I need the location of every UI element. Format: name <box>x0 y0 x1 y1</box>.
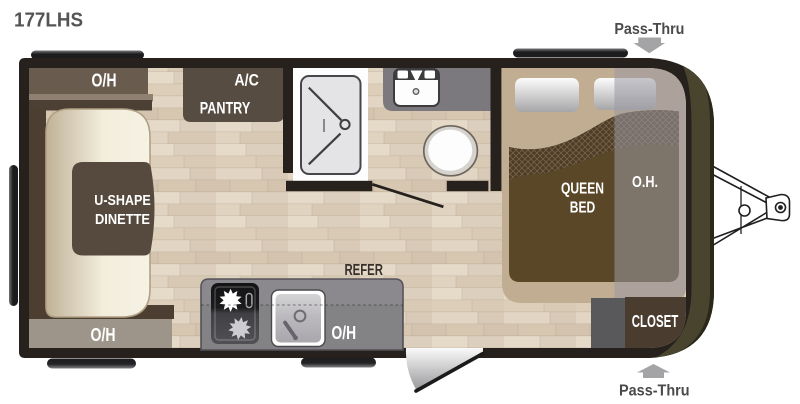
svg-text:PANTRY: PANTRY <box>200 99 251 118</box>
svg-text:Pass-Thru: Pass-Thru <box>619 383 690 400</box>
svg-text:O.H.: O.H. <box>632 174 658 191</box>
svg-text:Pass-Thru: Pass-Thru <box>614 21 684 38</box>
svg-text:O/H: O/H <box>92 70 117 91</box>
svg-text:CLOSET: CLOSET <box>632 311 679 331</box>
svg-text:BED: BED <box>570 200 596 217</box>
svg-text:U-SHAPE: U-SHAPE <box>94 193 151 209</box>
svg-text:DINETTE: DINETTE <box>95 212 150 228</box>
svg-text:177LHS: 177LHS <box>14 8 83 31</box>
svg-text:O/H: O/H <box>91 324 116 345</box>
svg-text:A/C: A/C <box>234 71 259 90</box>
svg-text:QUEEN: QUEEN <box>561 180 604 197</box>
svg-text:REFER: REFER <box>344 262 383 279</box>
svg-text:O/H: O/H <box>332 322 357 343</box>
